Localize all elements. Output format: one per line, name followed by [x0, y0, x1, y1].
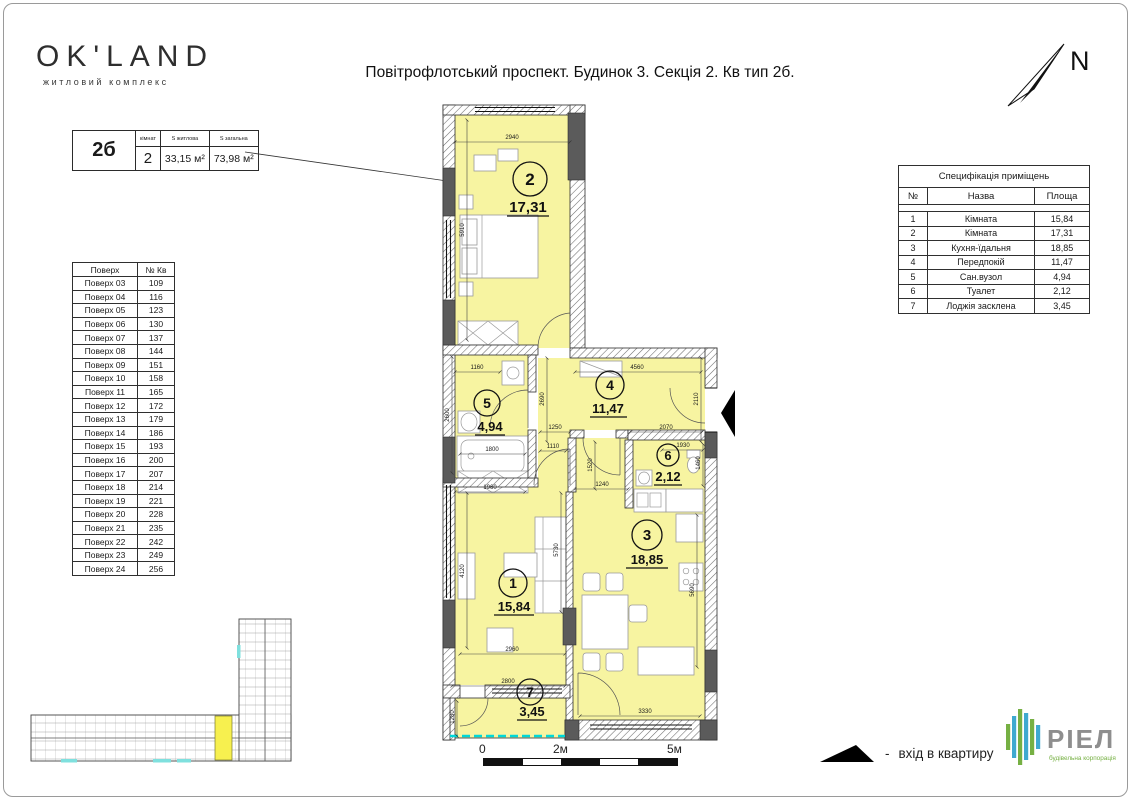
spec-area-cell: 3,45: [1035, 299, 1090, 314]
scale-bar: 0 2м 5м: [475, 742, 690, 770]
floor-label-cell: Поверх 07: [73, 331, 138, 345]
spec-area-cell: 4,94: [1035, 270, 1090, 285]
dim-label: 2960: [505, 647, 519, 653]
kitchen-sofa: [638, 647, 694, 675]
balcony-mark: [153, 759, 171, 763]
floor-label-cell: Поверх 12: [73, 399, 138, 413]
apartment-number-cell: 151: [138, 358, 175, 372]
apartment-number-cell: 179: [138, 412, 175, 426]
pier: [568, 113, 585, 180]
nightstand: [459, 282, 473, 296]
floor-label-cell: Поверх 09: [73, 358, 138, 372]
spec-name-cell: Кімната: [928, 212, 1035, 227]
spec-name-cell: Туалет: [928, 284, 1035, 299]
legend-dash: -: [885, 746, 890, 761]
dim-label: 3330: [638, 709, 652, 715]
apartment-number-cell: 158: [138, 372, 175, 386]
partition-room5-lower: [528, 430, 536, 478]
floor-label-cell: Поверх 16: [73, 453, 138, 467]
apartment-number-cell: 137: [138, 331, 175, 345]
floor-plan: 2940 5910 1160 2600 1800 1960 2690 4560 …: [430, 95, 750, 755]
apartment-number-cell: 123: [138, 304, 175, 318]
wall-room6-left: [625, 440, 633, 508]
pier: [700, 720, 717, 740]
partition-room5-upper: [528, 355, 536, 392]
apartment-number-cell: 235: [138, 521, 175, 535]
svg-text:2,12: 2,12: [655, 469, 680, 484]
floors-table-row: Поверх 07 137: [73, 331, 175, 345]
floor-label-cell: Поверх 03: [73, 277, 138, 291]
spec-spacer-row: [899, 205, 1090, 212]
rooms-header: кімнат: [136, 131, 161, 147]
spec-number-cell: 1: [899, 212, 928, 227]
apartment-info-table: 2б кімнат S житлова S загальна 2 33,15 м…: [72, 130, 259, 171]
svg-text:7: 7: [526, 684, 534, 700]
dim-label: 1800: [485, 447, 499, 453]
wall-right-upper: [705, 348, 717, 388]
floor-label-cell: Поверх 17: [73, 467, 138, 481]
floors-table-row: Поверх 14 186: [73, 426, 175, 440]
balcony-mark: [61, 759, 77, 763]
washing-machine: [502, 361, 524, 385]
page: OK'LAND житловий комплекс Повітрофлотськ…: [0, 0, 1131, 800]
spec-table-row: 1 Кімната 15,84: [899, 212, 1090, 227]
spec-number-cell: 5: [899, 270, 928, 285]
spec-area-cell: 15,84: [1035, 212, 1090, 227]
spec-number-cell: 3: [899, 241, 928, 256]
dim-label: 1110: [547, 444, 560, 450]
dim-label: 1460: [696, 456, 702, 470]
svg-text:5: 5: [483, 395, 491, 411]
svg-text:4,94: 4,94: [477, 419, 503, 434]
scale-label-0: 0: [479, 742, 486, 756]
dim-label: 1250: [548, 425, 562, 431]
pier: [565, 720, 579, 740]
floors-table: Поверх № Кв Поверх 03 109 Поверх 04 116 …: [72, 262, 175, 576]
spec-name-cell: Передпокій: [928, 255, 1035, 270]
spec-table: Специфікація приміщень № Назва Площа 1 К…: [898, 165, 1090, 314]
floors-table-row: Поверх 10 158: [73, 372, 175, 386]
sofa: [535, 517, 566, 613]
dim-label: 5730: [554, 543, 560, 557]
spec-number-header: №: [899, 188, 928, 205]
balcony-mark: [237, 645, 241, 658]
svg-text:15,84: 15,84: [498, 599, 531, 614]
apartment-type: 2б: [73, 131, 136, 171]
floors-table-row: Поверх 11 165: [73, 385, 175, 399]
spec-table-row: 6 Туалет 2,12: [899, 284, 1090, 299]
entrance-legend-label: вхід в квартиру: [899, 746, 994, 761]
wall-loggia-left-seg: [443, 685, 460, 698]
pier: [443, 168, 455, 216]
wall-hall-top: [570, 348, 717, 358]
wall-corridor-kitchen: [568, 438, 576, 492]
wall-kitchen-door-left: [570, 430, 584, 438]
floor-label-cell: Поверх 06: [73, 317, 138, 331]
apartment-number-cell: 165: [138, 385, 175, 399]
svg-text:1: 1: [509, 575, 517, 591]
floors-table-row: Поверх 16 200: [73, 453, 175, 467]
floor-label-cell: Поверх 10: [73, 372, 138, 386]
riel-logo-subtitle: будівельна корпорація: [1049, 754, 1116, 762]
leader-line-segment: [245, 152, 461, 183]
floors-table-row: Поверх 12 172: [73, 399, 175, 413]
dim-label: 5910: [460, 223, 466, 237]
floors-table-body: Поверх 03 109 Поверх 04 116 Поверх 05 12…: [73, 277, 175, 576]
spec-area-cell: 2,12: [1035, 284, 1090, 299]
entrance-arrow: [721, 390, 735, 437]
apartment-number-cell: 214: [138, 480, 175, 494]
nightstand: [459, 195, 473, 209]
spec-table-row: 4 Передпокій 11,47: [899, 255, 1090, 270]
spec-table-body: 1 Кімната 15,84 2 Кімната 17,31 3 Кухня-…: [899, 212, 1090, 314]
living-area-value: 33,15 м²: [160, 147, 209, 171]
svg-text:3,45: 3,45: [519, 704, 544, 719]
brand-subtitle: житловий комплекс: [43, 77, 214, 87]
dim-label: 2690: [540, 392, 546, 406]
spec-table-row: 2 Кімната 17,31: [899, 226, 1090, 241]
pier: [443, 300, 455, 345]
floors-table-row: Поверх 21 235: [73, 521, 175, 535]
floor-label-cell: Поверх 21: [73, 521, 138, 535]
floors-table-row: Поверх 06 130: [73, 317, 175, 331]
living-area-header: S житлова: [160, 131, 209, 147]
pier: [443, 600, 455, 648]
spec-area-cell: 17,31: [1035, 226, 1090, 241]
spec-number-cell: 2: [899, 226, 928, 241]
dim-label: 1160: [471, 365, 485, 371]
riel-logo: РІЕЛ будівельна корпорація: [1002, 702, 1122, 777]
floors-table-row: Поверх 17 207: [73, 467, 175, 481]
dim-label: 2940: [505, 135, 519, 141]
wall-top: [443, 105, 585, 115]
floors-table-row: Поверх 05 123: [73, 304, 175, 318]
dim-label: 2600: [445, 408, 451, 422]
floor-label-cell: Поверх 22: [73, 535, 138, 549]
dresser: [498, 149, 518, 161]
floors-table-row: Поверх 13 179: [73, 412, 175, 426]
pier: [443, 437, 455, 483]
spec-table-title: Специфікація приміщень: [899, 166, 1090, 188]
spec-name-header: Назва: [928, 188, 1035, 205]
bathtub: [457, 436, 528, 476]
floors-table-row: Поверх 15 193: [73, 440, 175, 454]
wall-loggia-side: [443, 698, 450, 740]
dim-label: 5690: [690, 583, 696, 597]
dim-label: 4560: [630, 365, 644, 371]
floor-label-cell: Поверх 24: [73, 562, 138, 576]
svg-text:6: 6: [664, 448, 671, 463]
wall-room5-top: [443, 345, 538, 355]
svg-text:4: 4: [606, 377, 614, 393]
apartment-number-cell: 207: [138, 467, 175, 481]
scale-bar-segments: [483, 758, 678, 766]
dim-label: 1930: [676, 443, 690, 449]
apartment-number-cell: 242: [138, 535, 175, 549]
floor-label-cell: Поверх 15: [73, 440, 138, 454]
wall-kitchen-bottom: [565, 720, 717, 740]
apartment-number-cell: 228: [138, 508, 175, 522]
rooms-count: 2: [136, 147, 161, 171]
bed: [460, 215, 538, 278]
north-label: N: [1070, 46, 1090, 76]
floors-table-row: Поверх 09 151: [73, 358, 175, 372]
floor-label-cell: Поверх 05: [73, 304, 138, 318]
apartment-number-cell: 130: [138, 317, 175, 331]
spec-title-row: Специфікація приміщень: [899, 166, 1090, 188]
apartment-number-cell: 193: [138, 440, 175, 454]
apartment-number-cell: 186: [138, 426, 175, 440]
entrance-legend: - вхід в квартиру: [818, 742, 993, 764]
svg-text:17,31: 17,31: [509, 199, 547, 216]
apartment-number-cell: 221: [138, 494, 175, 508]
pier: [705, 650, 717, 692]
floor-label-cell: Поверх 14: [73, 426, 138, 440]
floors-table-row: Поверх 08 144: [73, 344, 175, 358]
floors-table-row: Поверх 04 116: [73, 290, 175, 304]
svg-text:2: 2: [525, 170, 534, 189]
floors-table-row: Поверх 03 109: [73, 277, 175, 291]
riel-logo-name: РІЕЛ: [1047, 724, 1115, 754]
north-arrow-outline: [1008, 44, 1064, 106]
dim-label: 1240: [595, 482, 609, 488]
spec-name-cell: Кухня-їдальня: [928, 241, 1035, 256]
spec-number-cell: 7: [899, 299, 928, 314]
floors-table-row: Поверх 22 242: [73, 535, 175, 549]
floors-header: Поверх: [73, 263, 138, 277]
floor-label-cell: Поверх 23: [73, 548, 138, 562]
svg-text:11,47: 11,47: [592, 401, 624, 416]
floor-label-cell: Поверх 04: [73, 290, 138, 304]
apartment-number-cell: 144: [138, 344, 175, 358]
floor-label-cell: Поверх 11: [73, 385, 138, 399]
floors-table-row: Поверх 24 256: [73, 562, 175, 576]
spec-table-row: 5 Сан.вузол 4,94: [899, 270, 1090, 285]
brand-name: OK'LAND: [36, 40, 214, 74]
dim-label: 1960: [483, 485, 497, 491]
entrance-threshold: [705, 388, 717, 432]
svg-text:18,85: 18,85: [631, 552, 664, 567]
wall-room6-top: [628, 430, 705, 440]
floors-table-row: Поверх 20 228: [73, 508, 175, 522]
room-7-floor: [448, 698, 567, 738]
scale-label-5m: 5м: [667, 742, 682, 756]
page-title: Повітрофлотський проспект. Будинок 3. Се…: [300, 64, 860, 82]
pier: [563, 608, 576, 645]
wall-kitchen-door-right: [616, 430, 628, 438]
wall-right-lower: [705, 432, 717, 740]
spec-header-row: № Назва Площа: [899, 188, 1090, 205]
dim-label: 2070: [659, 425, 673, 431]
floors-table-row: Поверх 18 214: [73, 480, 175, 494]
floors-table-row: Поверх 23 249: [73, 548, 175, 562]
coffee-table: [504, 553, 537, 577]
spec-table-row: 7 Лоджія засклена 3,45: [899, 299, 1090, 314]
floor-label-cell: Поверх 20: [73, 508, 138, 522]
toilet-washbasin: [636, 470, 652, 486]
floor-label-cell: Поверх 19: [73, 494, 138, 508]
spec-name-cell: Лоджія засклена: [928, 299, 1035, 314]
dim-label: 1520: [588, 458, 594, 472]
spec-area-cell: 18,85: [1035, 241, 1090, 256]
apartment-number-cell: 200: [138, 453, 175, 467]
scale-label-2m: 2м: [553, 742, 568, 756]
floor-label-cell: Поверх 13: [73, 412, 138, 426]
floors-table-header-row: Поверх № Кв: [73, 263, 175, 277]
apartment-number-cell: 256: [138, 562, 175, 576]
apartment-number-header: № Кв: [138, 263, 175, 277]
spec-number-cell: 4: [899, 255, 928, 270]
chair: [474, 155, 496, 171]
apartment-number-cell: 249: [138, 548, 175, 562]
dim-label: 4120: [460, 564, 466, 578]
spec-table-row: 3 Кухня-їдальня 18,85: [899, 241, 1090, 256]
dim-label: 1280: [450, 710, 456, 724]
north-arrow: N: [1002, 32, 1102, 116]
dim-label: 2800: [501, 679, 515, 685]
floor-label-cell: Поверх 08: [73, 344, 138, 358]
brand-logo: OK'LAND житловий комплекс: [36, 40, 214, 87]
dim-label: 2110: [694, 392, 700, 406]
balcony-mark: [177, 759, 191, 763]
spec-area-header: Площа: [1035, 188, 1090, 205]
apartment-number-cell: 172: [138, 399, 175, 413]
highlighted-apartment: [215, 716, 232, 760]
spec-number-cell: 6: [899, 284, 928, 299]
apartment-number-cell: 109: [138, 277, 175, 291]
pier: [705, 432, 717, 458]
entrance-arrow-icon: [818, 742, 876, 764]
floor-label-cell: Поверх 18: [73, 480, 138, 494]
apartment-number-cell: 116: [138, 290, 175, 304]
spec-name-cell: Сан.вузол: [928, 270, 1035, 285]
spec-area-cell: 11,47: [1035, 255, 1090, 270]
riel-logo-bars: [1006, 709, 1040, 765]
building-overview-plan: [25, 615, 297, 775]
svg-text:3: 3: [643, 527, 651, 544]
floors-table-row: Поверх 19 221: [73, 494, 175, 508]
spec-name-cell: Кімната: [928, 226, 1035, 241]
